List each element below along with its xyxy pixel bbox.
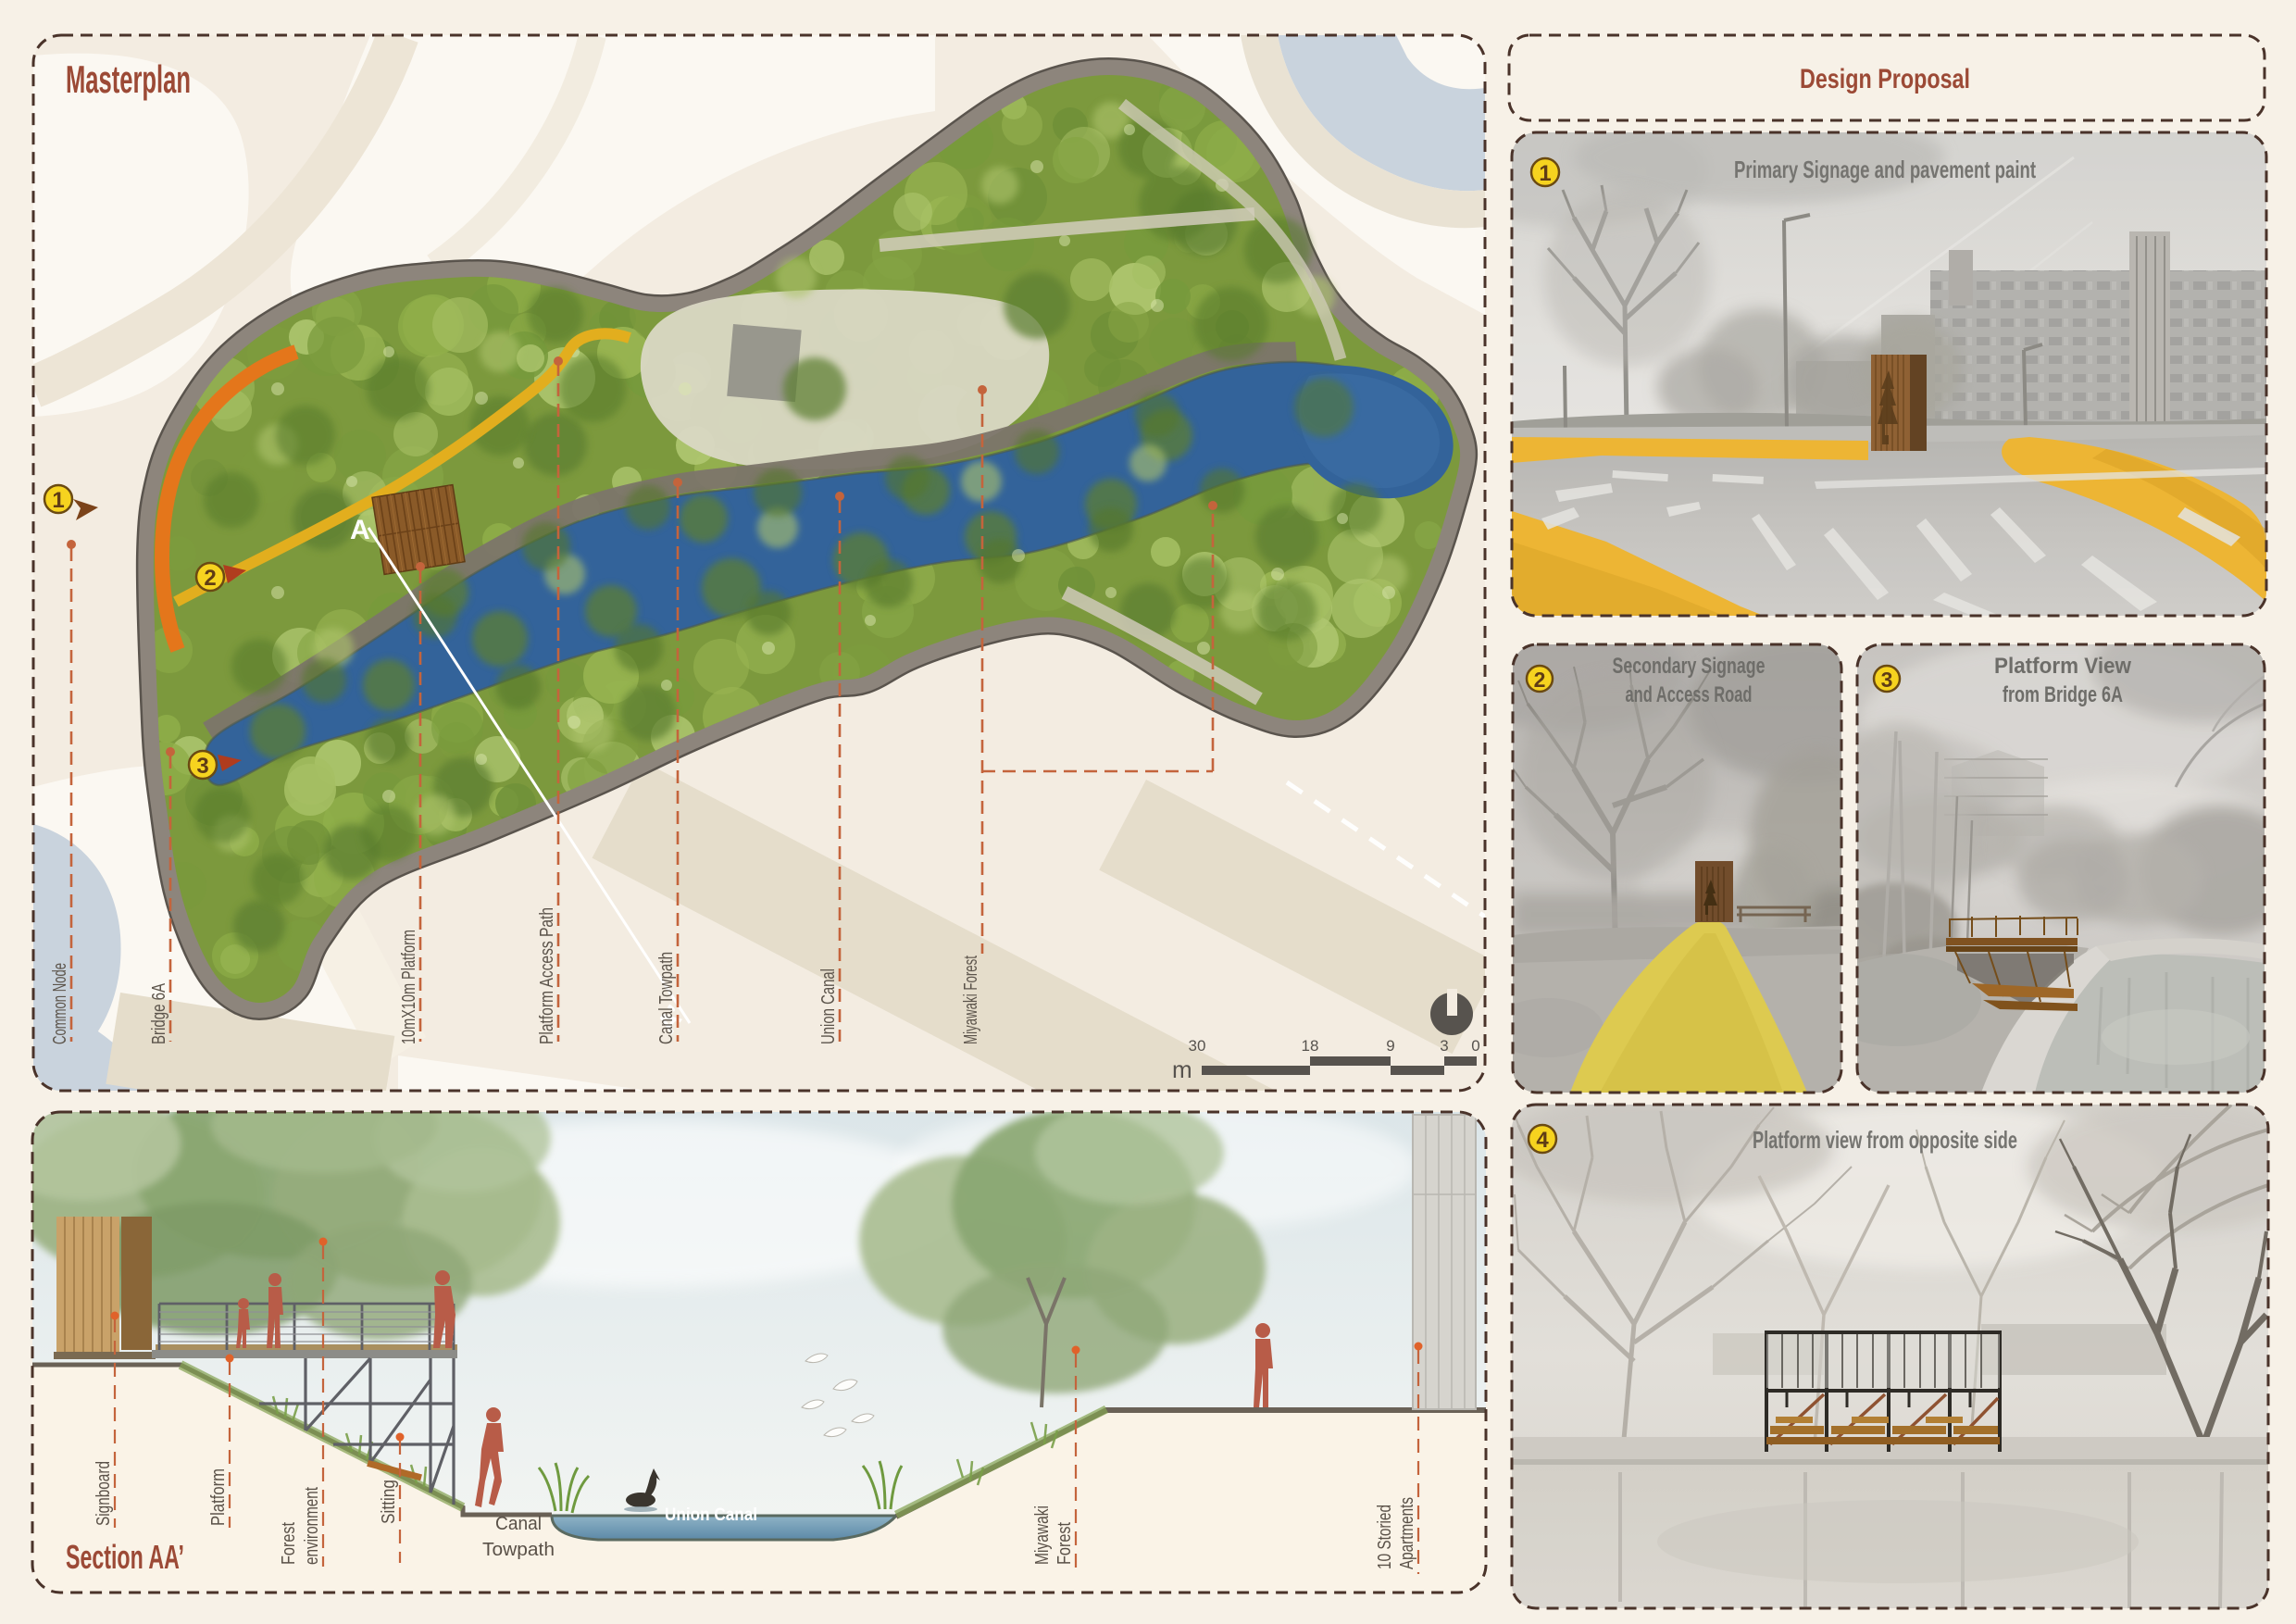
svg-text:Platform: Platform xyxy=(208,1468,229,1526)
svg-text:m: m xyxy=(1172,1056,1192,1083)
svg-text:and Access Road: and Access Road xyxy=(1626,682,1753,707)
svg-text:30: 30 xyxy=(1189,1037,1206,1055)
svg-text:Miyawaki: Miyawaki xyxy=(1032,1505,1053,1565)
svg-text:Canal Towpath: Canal Towpath xyxy=(656,952,677,1044)
svg-text:Common Node: Common Node xyxy=(50,963,70,1044)
svg-text:18: 18 xyxy=(1302,1037,1319,1055)
svg-text:Platform View: Platform View xyxy=(1994,654,2131,679)
svg-text:9: 9 xyxy=(1386,1037,1394,1055)
svg-text:Forest: Forest xyxy=(279,1522,299,1565)
svg-text:Union Canal: Union Canal xyxy=(665,1505,757,1525)
svg-text:Primary Signage and pavement p: Primary Signage and pavement paint xyxy=(1734,156,2036,183)
svg-text:Sitting: Sitting xyxy=(379,1480,399,1524)
svg-text:10 Storied: 10 Storied xyxy=(1375,1505,1395,1569)
svg-text:Design Proposal: Design Proposal xyxy=(1800,64,1970,94)
svg-text:A: A xyxy=(350,515,370,545)
svg-text:0: 0 xyxy=(1471,1037,1479,1055)
svg-text:Signboard: Signboard xyxy=(94,1461,114,1526)
svg-text:Platform Access Path: Platform Access Path xyxy=(537,907,557,1044)
svg-text:Bridge 6A: Bridge 6A xyxy=(149,983,169,1044)
svg-text:Apartments: Apartments xyxy=(1397,1497,1417,1569)
svg-text:10mX10m Platform: 10mX10m Platform xyxy=(399,930,419,1044)
svg-text:Platform view from opposite si: Platform view from opposite side xyxy=(1753,1126,2017,1154)
svg-text:Masterplan: Masterplan xyxy=(66,57,191,101)
svg-text:3: 3 xyxy=(1881,668,1893,692)
svg-text:Canal: Canal xyxy=(495,1514,542,1534)
svg-text:1: 1 xyxy=(52,488,64,513)
svg-text:Miyawaki Forest: Miyawaki Forest xyxy=(961,956,981,1044)
svg-text:2: 2 xyxy=(1534,668,1546,692)
svg-text:4: 4 xyxy=(1536,1128,1549,1153)
svg-text:from Bridge 6A: from Bridge 6A xyxy=(2003,682,2123,707)
svg-text:Union Canal: Union Canal xyxy=(818,968,839,1044)
svg-text:3: 3 xyxy=(196,754,208,779)
svg-text:1: 1 xyxy=(1539,161,1551,186)
svg-text:2: 2 xyxy=(204,566,216,591)
svg-text:Secondary Signage: Secondary Signage xyxy=(1613,654,1766,679)
svg-text:Towpath: Towpath xyxy=(482,1540,555,1560)
svg-text:environment: environment xyxy=(302,1487,322,1565)
svg-text:Forest: Forest xyxy=(1054,1522,1075,1565)
svg-text:3: 3 xyxy=(1440,1037,1448,1055)
svg-text:Section AA’: Section AA’ xyxy=(66,1538,184,1576)
